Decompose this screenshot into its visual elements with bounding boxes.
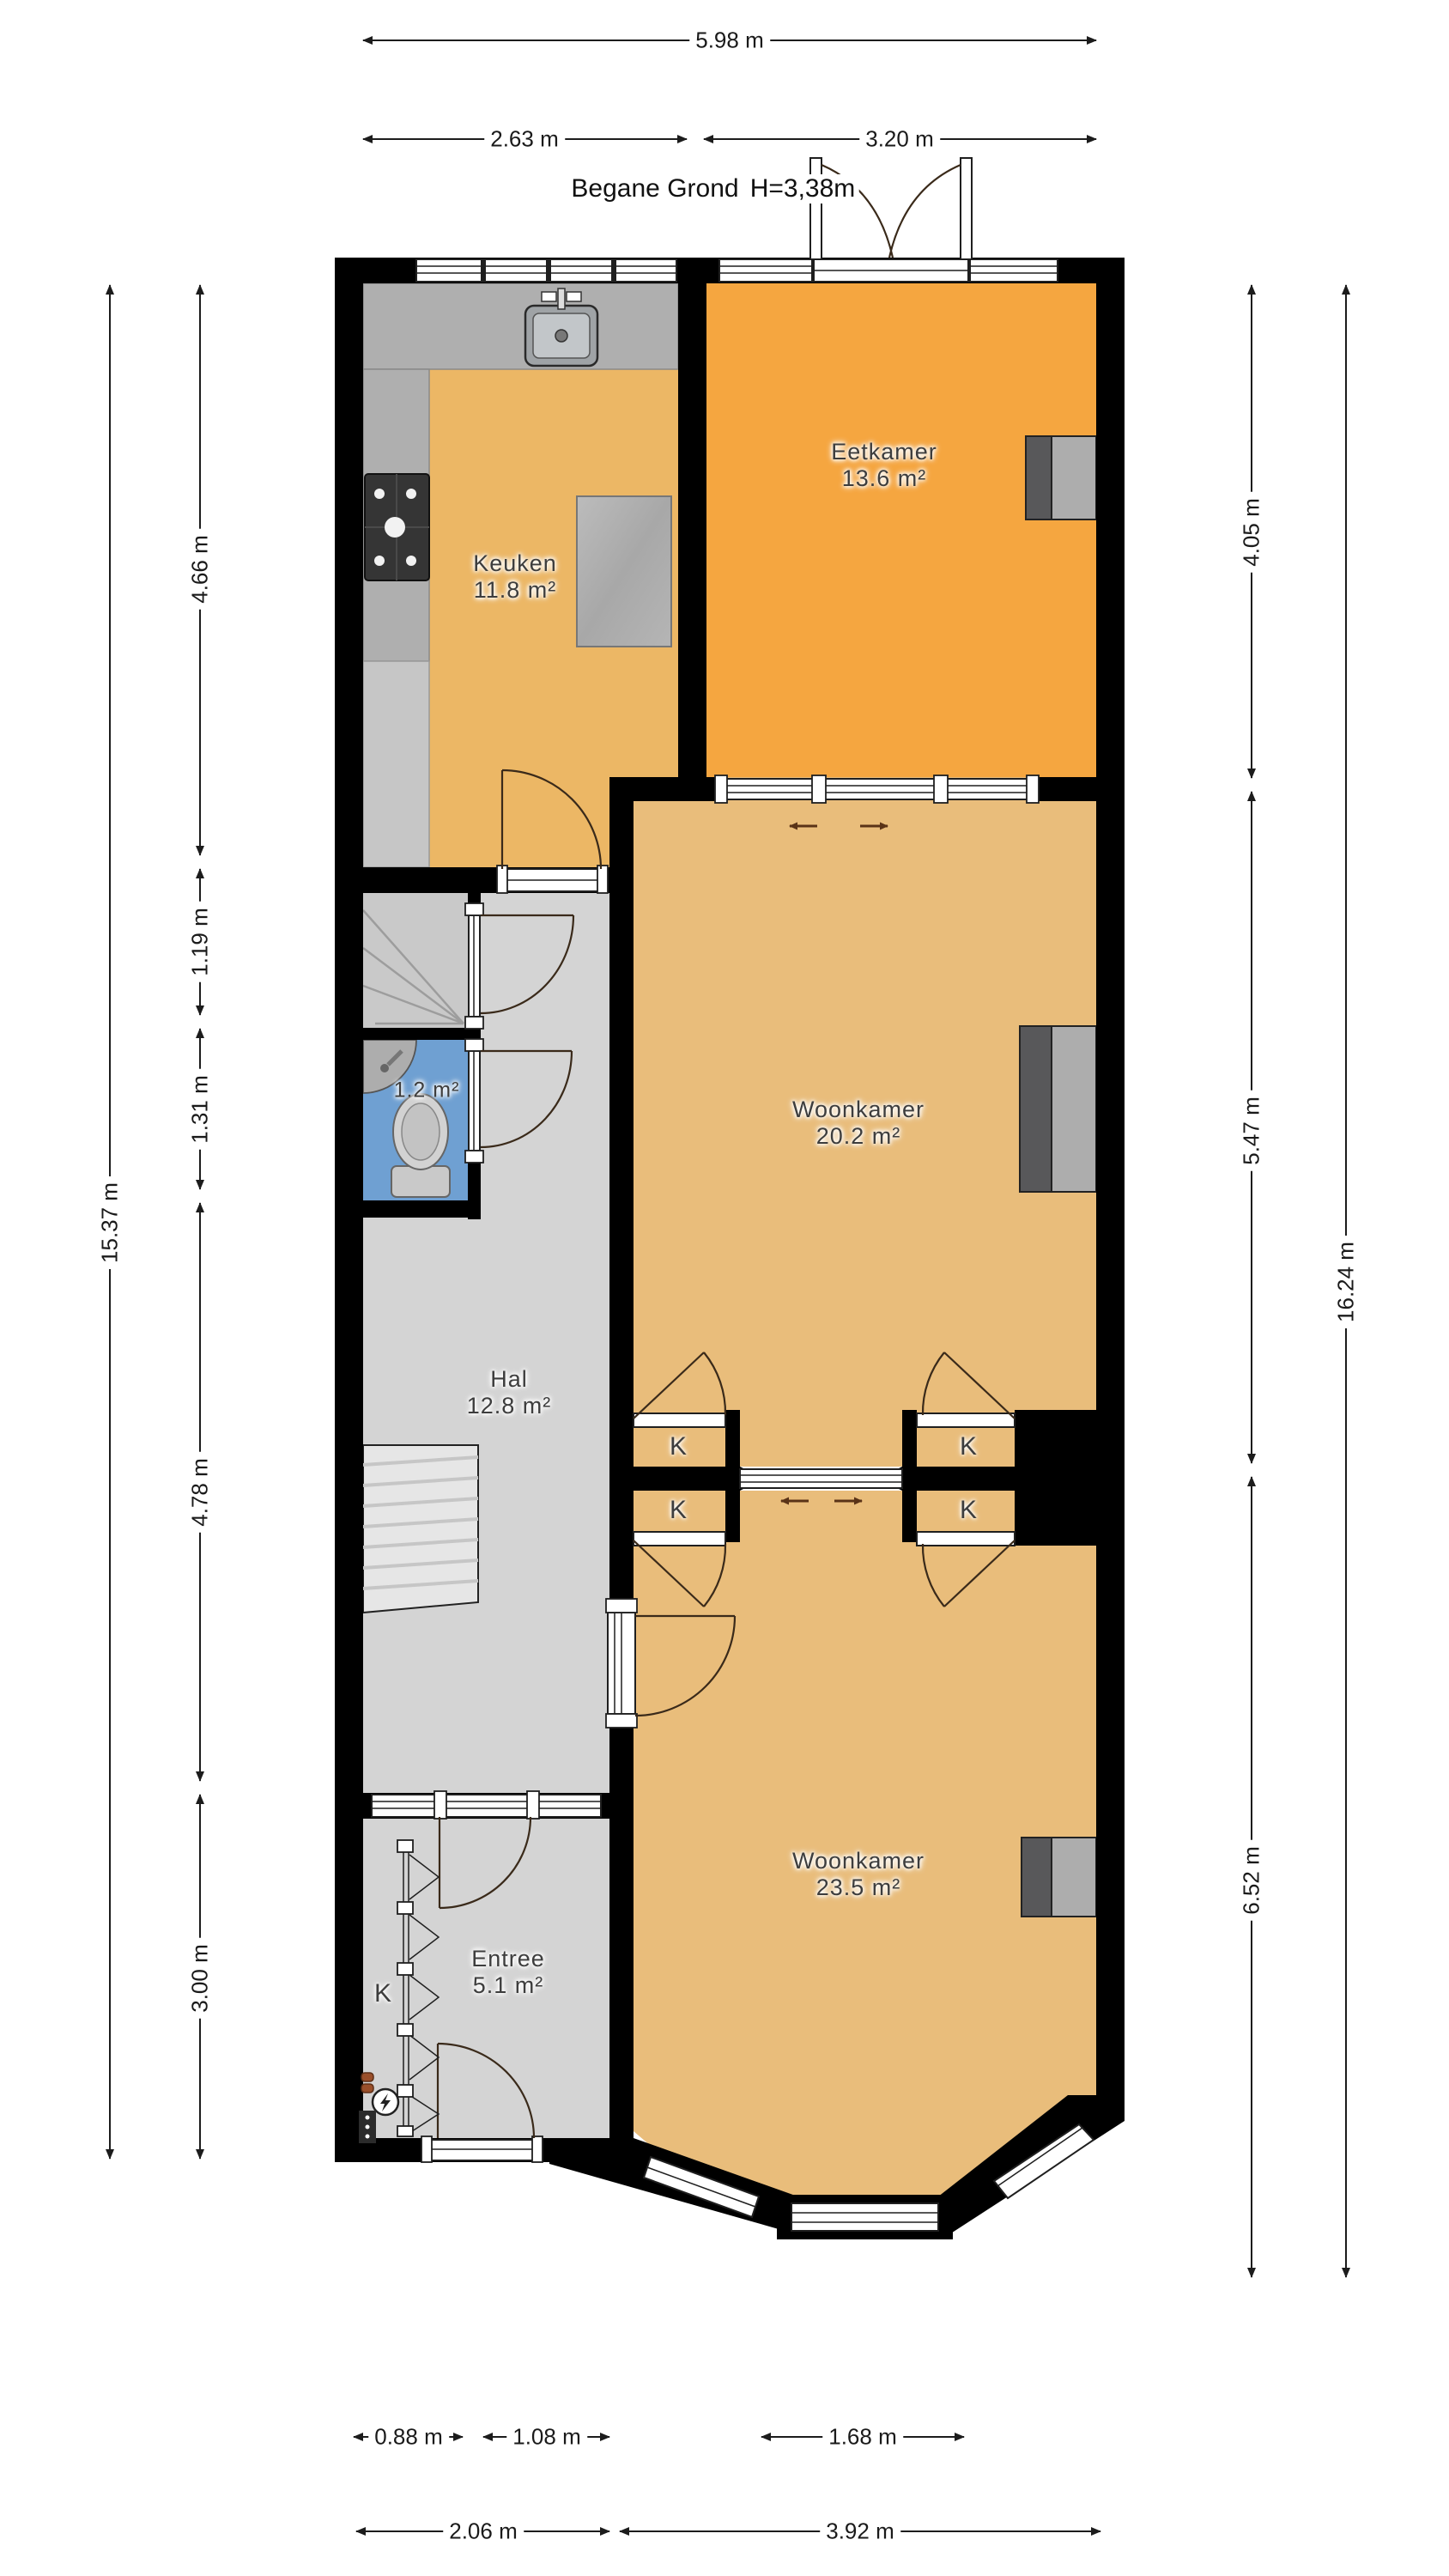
dim-right-s2: 5.47 m (1239, 1091, 1265, 1171)
dim-bottom-s1: 0.88 m (368, 2424, 449, 2451)
dim-right-total: 16.24 m (1333, 1236, 1360, 1328)
room-label-eetkamer: Eetkamer 13.6 m² (831, 439, 937, 492)
dim-bottom-s2: 1.08 m (506, 2424, 587, 2451)
room-label-woonkamer-front: Woonkamer 23.5 m² (792, 1848, 925, 1901)
closet-label-left-bottom: K (670, 1496, 687, 1525)
room-label-hal: Hal 12.8 m² (467, 1366, 552, 1419)
dim-bottom-s3: 1.68 m (822, 2424, 903, 2451)
room-label-keuken: Keuken 11.8 m² (473, 550, 557, 604)
staircase-straight (363, 1445, 478, 1613)
radiator-icon (359, 2111, 376, 2143)
electric-meter-icon (373, 2089, 398, 2115)
floorplan-page: Begane Grond H=3,38m Keuken 11.8 m² Eetk… (0, 0, 1449, 2576)
plan-ceiling-height: H=3,38m (747, 174, 859, 204)
dining-window-left (719, 259, 812, 282)
dim-left-s1: 4.66 m (187, 529, 214, 610)
dim-left-total: 15.37 m (97, 1176, 124, 1269)
dim-left-s3: 1.31 m (187, 1069, 214, 1150)
floorplan-drawing (0, 0, 1449, 2576)
dim-left-s5: 3.00 m (187, 1938, 214, 2019)
sideboard-dining (1026, 436, 1096, 519)
kitchen-island (577, 496, 671, 647)
dim-left-s2: 1.19 m (187, 902, 214, 982)
dim-top-left: 2.63 m (484, 126, 565, 153)
toilet-icon (391, 1094, 450, 1197)
plan-title: Begane Grond (567, 174, 742, 204)
dim-bottom-w1: 2.06 m (443, 2518, 524, 2545)
dim-bottom-w2: 3.92 m (820, 2518, 900, 2545)
dim-top-total: 5.98 m (689, 27, 770, 54)
closet-label-right-top: K (960, 1432, 977, 1461)
dim-right-s3: 6.52 m (1239, 1840, 1265, 1921)
sideboard-living-front (1022, 1838, 1096, 1917)
stove-icon (365, 474, 429, 580)
dim-left-s4: 4.78 m (187, 1452, 214, 1533)
room-label-woonkamer-mid: Woonkamer 20.2 m² (792, 1097, 925, 1150)
dim-top-right: 3.20 m (859, 126, 940, 153)
bay-window-front (791, 2203, 938, 2231)
room-label-entree: Entree 5.1 m² (471, 1946, 545, 1999)
kitchen-window (416, 259, 676, 282)
closet-label-left-top: K (670, 1432, 687, 1461)
closet-label-right-bottom: K (960, 1496, 977, 1525)
sideboard-living-mid (1020, 1026, 1096, 1192)
closet-label-entree: K (374, 1979, 391, 2008)
room-label-toilet: 1.2 m² (394, 1078, 460, 1103)
dim-right-s1: 4.05 m (1239, 492, 1265, 573)
dining-window-right (970, 259, 1058, 282)
